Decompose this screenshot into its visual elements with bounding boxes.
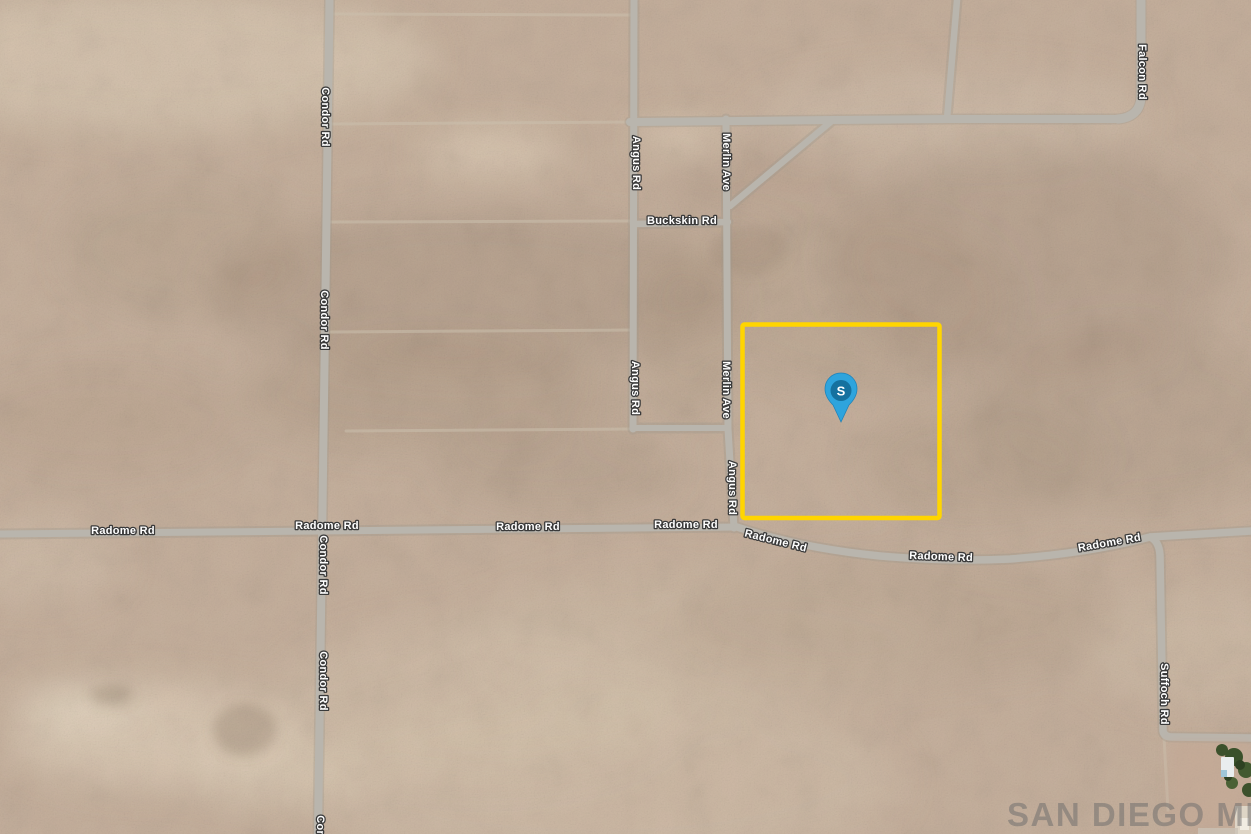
pool-structure [1221,770,1227,777]
road-label-falcon: Falcon Rd [1136,44,1148,100]
road-label-angus-1: Angus Rd [630,136,642,190]
road-label-condor-2: Condor Rd [318,290,330,350]
watermark-san-diego-mls: SAN DIEGO MLS [1007,796,1251,833]
road-label-merlin-1: Merlin Ave [720,133,732,191]
road-label-radome-2: Radome Rd [295,520,359,532]
road-label-merlin-2: Merlin Ave [720,361,732,419]
road-label-angus-2: Angus Rd [629,361,641,415]
road-label-condor-4: Condor Rd [317,651,329,711]
road-label-radome-4: Radome Rd [654,519,718,531]
road-label-radome-3: Radome Rd [496,521,560,533]
road-label-condor-1: Condor Rd [319,87,331,147]
satellite-map-view[interactable]: Condor Rd Condor Rd Condor Rd Condor Rd … [0,0,1251,834]
road-label-angus-3: Angus Rd [726,461,738,515]
road-label-buckskin: Buckskin Rd [647,215,717,227]
road-label-condor-5: Condor Rd [314,815,326,834]
road-label-radome-1: Radome Rd [91,525,155,537]
road-label-condor-3: Condor Rd [317,535,329,595]
road-label-suffoch: Suffoch Rd [1158,663,1170,725]
road-top-horizontal [630,119,1120,122]
road-label-radome-6: Radome Rd [909,550,973,564]
marker-label: S [837,384,846,399]
